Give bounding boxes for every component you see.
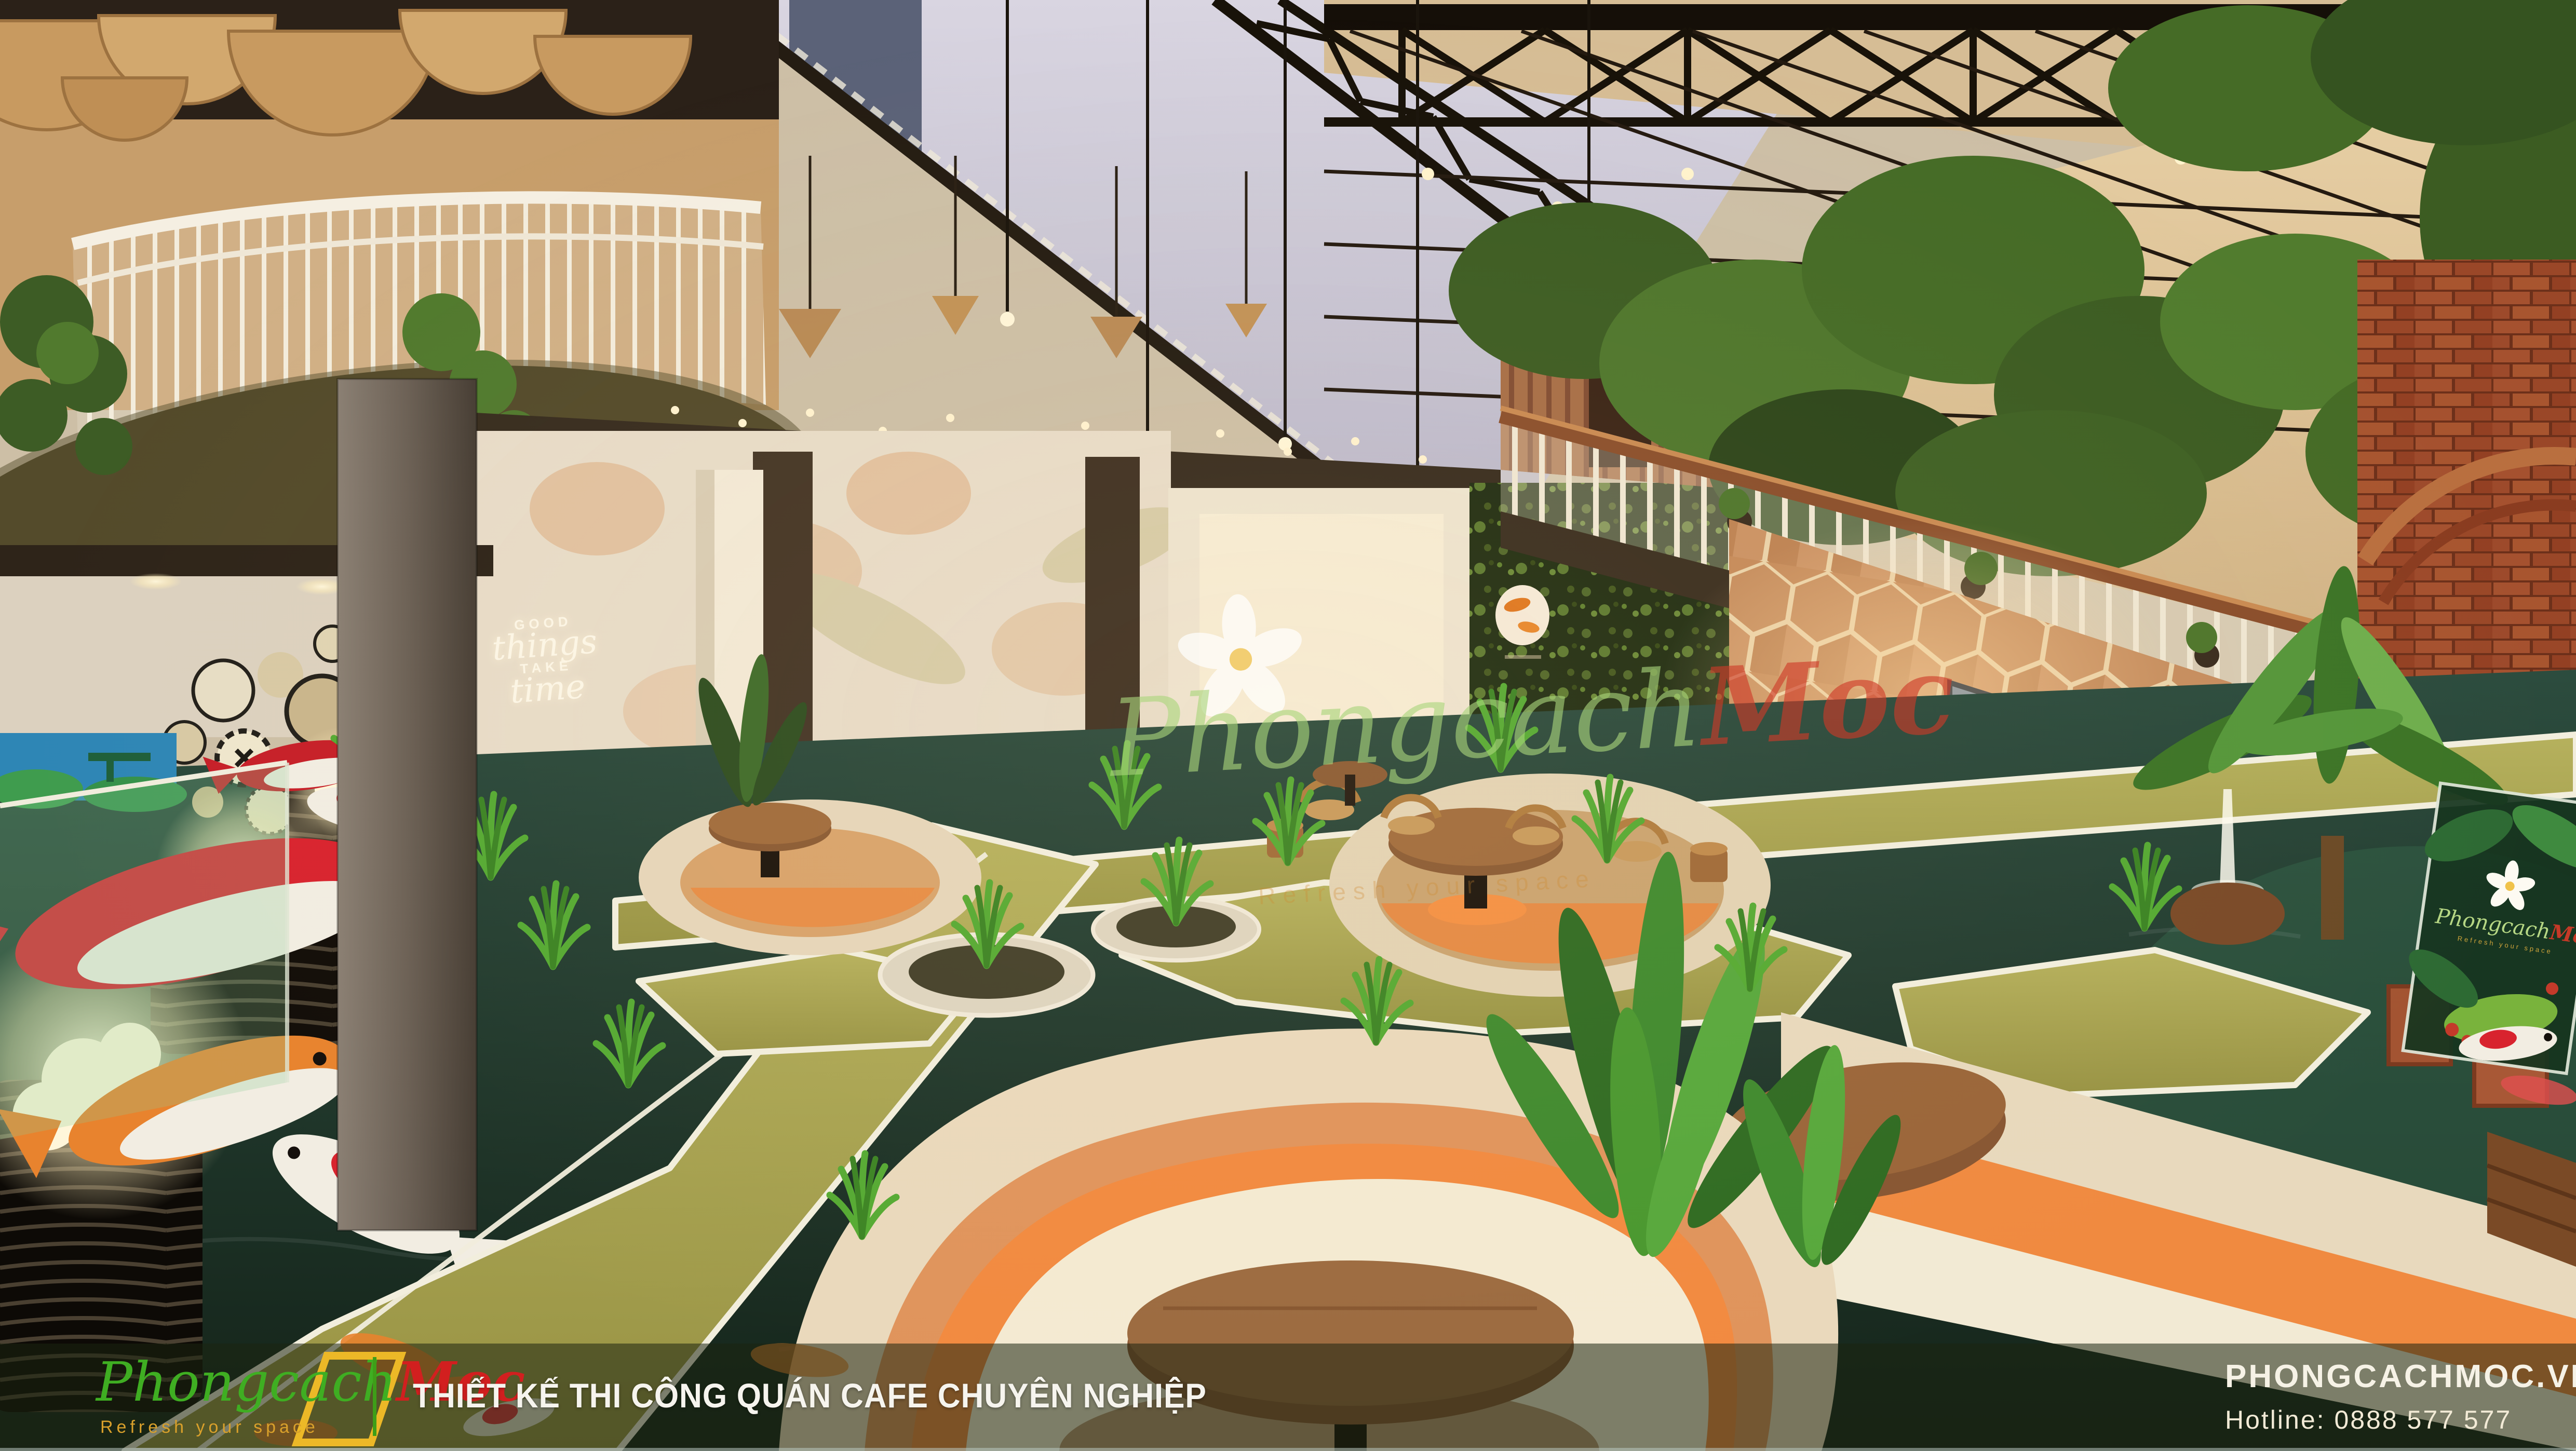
- footer-website: PHONGCACHMOC.VN: [2225, 1358, 2537, 1395]
- footer-headline: THIẾT KẾ THI CÔNG QUÁN CAFE CHUYÊN NGHIỆ…: [413, 1376, 1207, 1415]
- logo-tagline: Refresh your space: [100, 1417, 319, 1438]
- logo-main-text: Phongcach: [96, 1350, 397, 1414]
- scene-illustration: [0, 0, 2576, 1451]
- footer-hotline: Hotline: 0888 577 577: [2225, 1405, 2512, 1435]
- footer-divider: [373, 1357, 376, 1436]
- hotline-number: 0888 577 577: [2334, 1405, 2512, 1434]
- postcard-logo-accent: Moc: [2548, 920, 2576, 951]
- cafe-render: GOOD things TAKE time PhongcachMoc Refre…: [0, 0, 2576, 1451]
- footer-bar: PhongcachMoc Refresh your space THIẾT KẾ…: [0, 1344, 2576, 1451]
- wall-quote-sign: GOOD things TAKE time: [488, 613, 603, 709]
- footer-bottom-edge: [0, 1448, 2576, 1451]
- vignette: [0, 0, 2576, 1451]
- hotline-label: Hotline:: [2225, 1405, 2326, 1434]
